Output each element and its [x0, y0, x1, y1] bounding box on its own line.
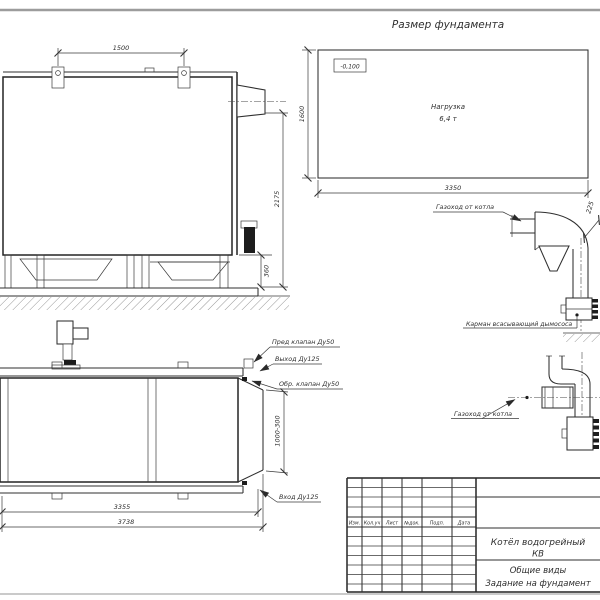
- titleblock-doc-type-line1: Общие виды: [510, 566, 567, 576]
- lifting-lug-right: [178, 67, 190, 88]
- label-safety-valve: Пред клапан Ду50: [272, 338, 334, 346]
- ground-hatch: [0, 297, 289, 310]
- lifting-lug-left: [52, 67, 64, 88]
- label-flue-from-boiler: Газоход от котла: [436, 203, 494, 211]
- dim-foundation-width: 3350: [445, 184, 462, 192]
- elevation-mark: -0,100: [340, 64, 360, 71]
- drain-fitting: [244, 227, 255, 253]
- titleblock-col-data: Дата: [457, 521, 470, 527]
- pump-motor: [57, 321, 73, 344]
- drawing-canvas: Размер фундамента 1: [0, 0, 600, 600]
- titleblock-col-podp: Подп.: [430, 521, 445, 527]
- label-check-valve: Обр. клапан Ду50: [279, 380, 339, 388]
- titleblock-col-ndok: №док.: [403, 521, 420, 527]
- titleblock-doc-type-line2: Задание на фундамент: [485, 579, 591, 589]
- titleblock-col-list: Лист: [385, 521, 398, 527]
- titleblock-col-koluch: Кол.уч: [364, 521, 381, 527]
- dim-length-body: 3355: [114, 503, 131, 511]
- burner-port: [237, 85, 265, 117]
- label-suction-pocket: Карман всасывающий дымососа: [466, 321, 572, 328]
- dim-base-height: 360: [263, 265, 271, 277]
- titleblock-product-name-line2: КВ: [532, 550, 544, 560]
- label-inlet: Вход Ду125: [279, 493, 319, 501]
- titleblock-product-name-line1: Котёл водогрейный: [491, 538, 586, 548]
- load-label-line2: 6,4 т: [439, 115, 457, 123]
- dim-lug-spacing: 1500: [113, 44, 130, 52]
- dim-length-total: 3738: [118, 518, 135, 526]
- inlet-stub: [242, 481, 247, 485]
- engineering-drawing: Размер фундамента 1: [0, 0, 600, 600]
- titleblock-col-izm: Изм.: [349, 521, 360, 527]
- dim-height: 2175: [273, 191, 281, 208]
- dim-foundation-depth: 1600: [298, 106, 306, 123]
- label-flue-from-boiler-plan: Газоход от котла: [454, 410, 512, 418]
- load-label-line1: Нагрузка: [431, 103, 465, 111]
- page-title: Размер фундамента: [392, 19, 504, 31]
- label-outlet: Выход Ду125: [275, 355, 320, 363]
- foundation-plan-view: -0,100 Нагрузка 6,4 т 1600 3350: [298, 50, 588, 198]
- check-valve-stub: [242, 377, 247, 381]
- dim-rear-section: 1000-300: [274, 415, 282, 446]
- suction-pocket-plan: [567, 417, 593, 450]
